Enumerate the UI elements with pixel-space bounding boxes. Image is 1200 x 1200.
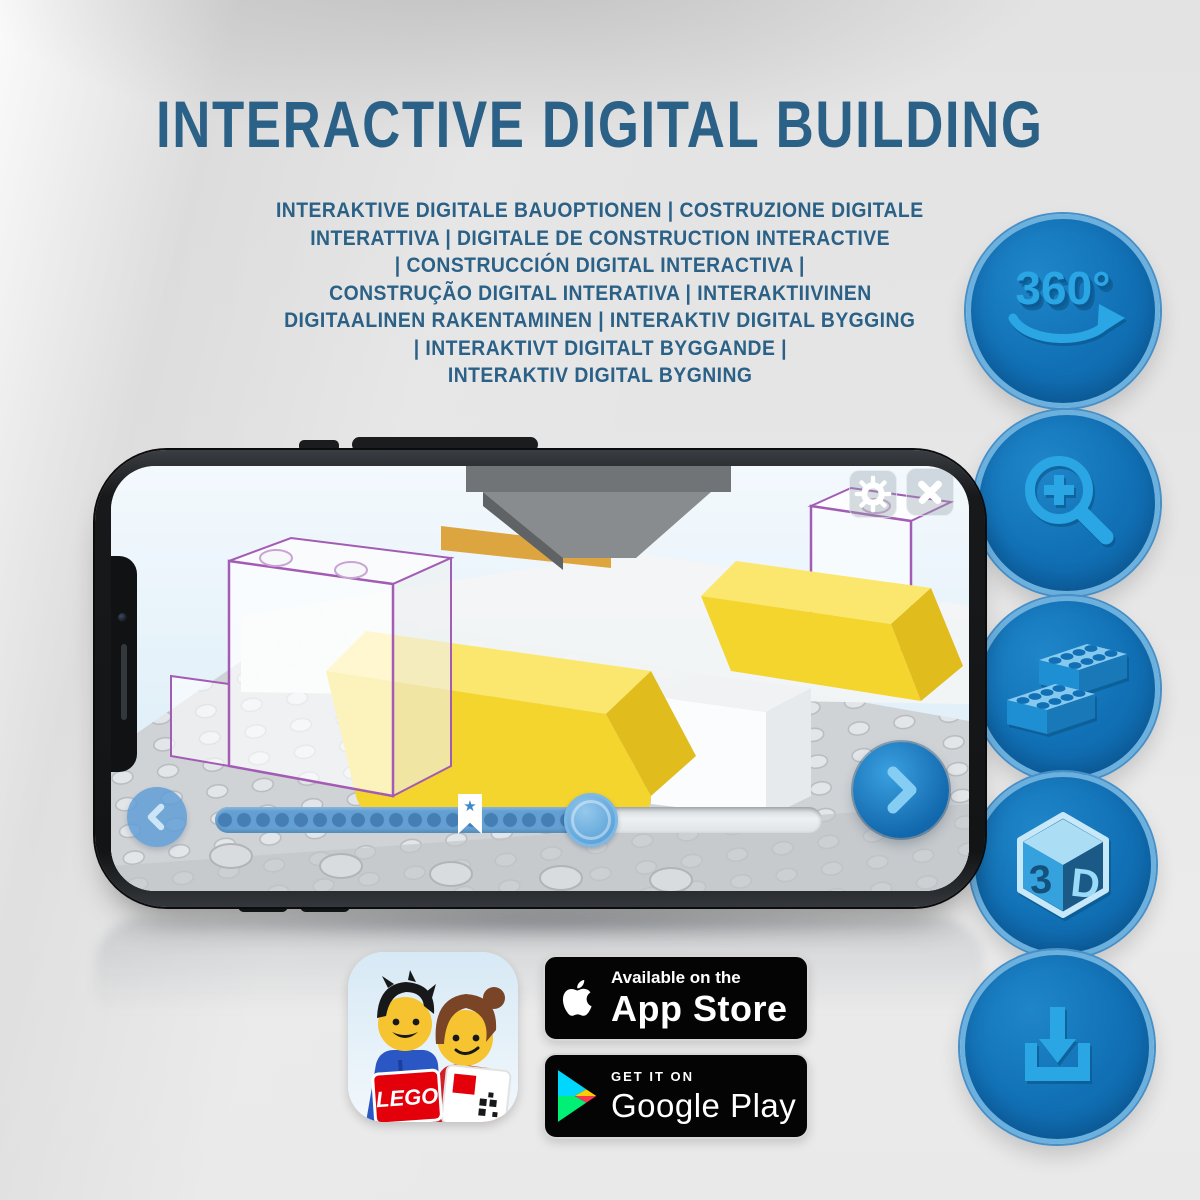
close-icon xyxy=(910,472,950,512)
360-rotation-icon: 360° 360° xyxy=(993,252,1133,370)
page-title: INTERACTIVE DIGITAL BUILDING xyxy=(0,86,1200,162)
lego-app-icon[interactable]: LEGO xyxy=(348,952,518,1122)
front-camera xyxy=(118,613,127,622)
svg-text:3: 3 xyxy=(1027,857,1054,903)
camera-notch xyxy=(111,556,137,772)
app-store-tagline: Available on the xyxy=(611,969,788,986)
svg-text:LEGO: LEGO xyxy=(375,1083,439,1112)
google-play-badge[interactable]: GET IT ON Google Play xyxy=(543,1053,809,1139)
previous-step-button[interactable] xyxy=(127,787,187,847)
subtitle-line: INTERAKTIVE DIGITALE BAUOPTIONEN | COSTR… xyxy=(0,197,1200,225)
phone-screen: ★ xyxy=(111,466,969,891)
feature-button-3d[interactable]: 3 D xyxy=(970,772,1156,958)
app-store-badge[interactable]: Available on the App Store xyxy=(543,955,809,1041)
feature-button-360[interactable]: 360° 360° xyxy=(966,214,1160,408)
svg-text:D: D xyxy=(1069,861,1102,908)
settings-button[interactable] xyxy=(849,470,897,518)
lego-builder-app-icon-art: LEGO xyxy=(348,952,518,1122)
app-store-name: App Store xyxy=(611,991,788,1027)
star-icon: ★ xyxy=(463,798,476,815)
3d-cube-icon: 3 D xyxy=(1003,805,1123,925)
chevron-left-icon xyxy=(140,800,174,834)
google-play-triangle-icon xyxy=(545,1070,611,1122)
svg-text:360°: 360° xyxy=(1015,262,1110,314)
earpiece-speaker xyxy=(121,644,127,720)
close-button[interactable] xyxy=(906,468,954,516)
slider-fill xyxy=(215,807,591,833)
feature-button-zoom[interactable] xyxy=(974,410,1160,596)
zoom-in-magnifier-icon xyxy=(1007,443,1127,563)
google-play-tagline: GET IT ON xyxy=(611,1070,796,1083)
promo-poster: INTERACTIVE DIGITAL BUILDING INTERAKTIVE… xyxy=(0,0,1200,1200)
download-tray-icon xyxy=(997,987,1117,1107)
chevron-right-icon xyxy=(875,764,927,816)
feature-button-bricks[interactable] xyxy=(974,596,1160,782)
next-step-button[interactable] xyxy=(853,742,949,838)
apple-icon xyxy=(545,972,611,1024)
feature-button-download[interactable] xyxy=(960,950,1154,1144)
gear-icon xyxy=(853,474,893,514)
slider-thumb[interactable] xyxy=(564,793,618,847)
lego-bricks-icon xyxy=(1003,630,1131,748)
phone-mockup: ★ xyxy=(95,450,985,907)
google-play-name: Google Play xyxy=(611,1089,796,1122)
build-progress-slider[interactable]: ★ xyxy=(215,807,822,833)
